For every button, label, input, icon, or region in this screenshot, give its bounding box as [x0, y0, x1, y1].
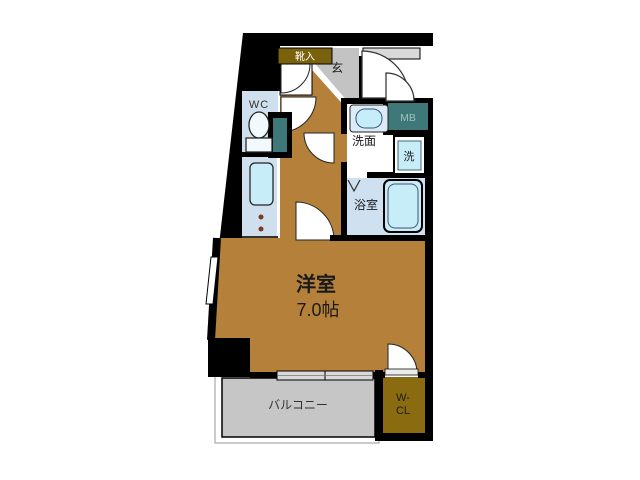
closet-label-line2: CL	[396, 405, 410, 417]
stove-burner-icon-2	[259, 227, 264, 232]
stove-burner-icon-1	[259, 215, 264, 220]
wall-bath-top-stub	[341, 172, 347, 178]
main-room-size-label: 7.0帖	[296, 300, 339, 320]
washbasin-icon	[356, 109, 382, 128]
kitchen-counter-edge	[242, 236, 278, 238]
bathtub-icon	[384, 180, 422, 232]
washroom-label: 洗面	[352, 134, 376, 148]
wall-right	[425, 100, 433, 441]
wall-closet-bottom	[375, 433, 433, 441]
wall-bath-bottom	[341, 235, 433, 241]
wall-wc-top-line	[242, 88, 280, 91]
wall-closet-left	[375, 370, 383, 441]
wall-hall-stub	[330, 235, 341, 241]
wall-bottom-seg1	[250, 372, 277, 378]
toilet-tank-icon	[246, 138, 272, 152]
wc-label: WC	[249, 99, 269, 111]
wall-bath-left	[341, 178, 347, 235]
main-room-label: 洋室	[296, 272, 336, 296]
floor-plan-svg: 洋室 7.0帖 バルコニー WC 洗面 浴室 洗 MB 玄 靴入 W- CL	[0, 0, 640, 480]
shoe-cabinet-label: 靴入	[295, 50, 315, 63]
entrance-label: 玄	[331, 60, 343, 75]
wall-washroom-left-upper	[341, 104, 347, 134]
pipe-shaft	[273, 118, 287, 152]
floor-plan-image: 洋室 7.0帖 バルコニー WC 洗面 浴室 洗 MB 玄 靴入 W- CL	[0, 0, 640, 480]
closet-door-sill	[385, 369, 418, 375]
meter-box-label: MB	[400, 112, 416, 124]
washer-label: 洗	[404, 150, 415, 163]
wall-top-left-mass	[236, 46, 280, 91]
wall-washroom-left-lower	[341, 162, 347, 172]
balcony-label: バルコニー	[268, 398, 328, 412]
wall-top	[242, 33, 434, 46]
wall-pillar	[208, 338, 250, 377]
closet-label-line1: W-	[396, 392, 410, 404]
bathroom-label: 浴室	[354, 197, 378, 212]
kitchen-sink-icon	[250, 163, 273, 205]
toilet-bowl-icon	[249, 112, 269, 138]
